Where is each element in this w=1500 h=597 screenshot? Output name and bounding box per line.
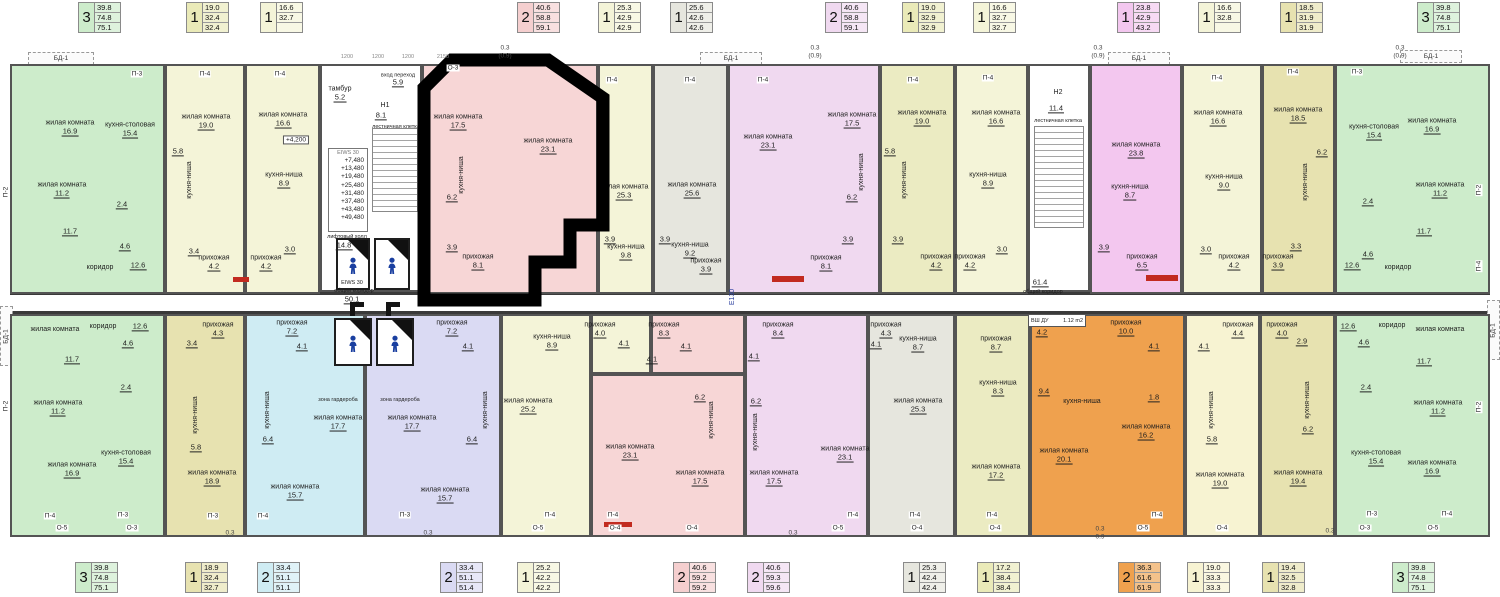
room-area: 11.2	[1432, 189, 1448, 198]
axis-label-text: П-4	[608, 512, 618, 519]
room-area: 3.9	[842, 235, 854, 244]
room-area: 2.9	[1296, 337, 1308, 346]
area-values: 19.032.932.9	[919, 3, 944, 32]
room-area: 4.3	[880, 329, 892, 338]
room-name: лифтовый холл	[327, 234, 367, 240]
room-area: 3.0	[284, 245, 296, 254]
room-label: 5.8	[190, 443, 202, 452]
room-count: 1	[518, 563, 534, 592]
axis-label: П-4	[1476, 260, 1483, 272]
area-value: 25.6	[687, 3, 712, 13]
room-area: 5.9	[392, 78, 404, 87]
area-value: 19.0	[203, 3, 228, 13]
room-label: кухня-ниша	[901, 161, 909, 198]
room-area: 5.8	[190, 443, 202, 452]
room-label: кухня-ниша	[458, 156, 466, 193]
room-label: жилая комната	[1416, 326, 1465, 334]
duct-area: 1.12 m2	[1063, 318, 1083, 324]
area-value: 19.0	[919, 3, 944, 13]
room-label: 2.9	[1296, 337, 1308, 346]
room-count: 3	[79, 3, 95, 32]
apartment-summary-card[interactable]: 117.238.438.4	[977, 562, 1020, 593]
apartment-summary-card[interactable]: 125.642.642.6	[670, 2, 713, 33]
corridor-label: 61.4	[1032, 278, 1049, 287]
area-values: 17.238.438.4	[994, 563, 1019, 592]
room-label: 3.9	[446, 243, 458, 252]
apartment-summary-card[interactable]: 125.342.442.4	[903, 562, 946, 593]
room-label: 4.1	[296, 342, 308, 351]
room-count: 2	[748, 563, 764, 592]
room-area: 11.2	[54, 189, 70, 198]
central-corridor	[10, 292, 1490, 314]
area-value: 74.8	[92, 573, 117, 583]
area-values: 40.658.859.1	[842, 3, 867, 32]
room-area: 12.6	[1344, 261, 1361, 270]
room-label: 3.3	[1290, 242, 1302, 251]
axis-label: П-4	[544, 512, 556, 519]
apartment-summary-card[interactable]: 233.451.151.1	[257, 562, 300, 593]
apartment-summary-card[interactable]: 233.451.151.4	[440, 562, 483, 593]
area-value: 32.4	[202, 573, 227, 583]
area-values: 19.432.532.8	[1279, 563, 1304, 592]
area-value: 32.7	[277, 13, 302, 23]
room-area: 2.4	[1362, 197, 1374, 206]
area-value: 32.9	[919, 23, 944, 32]
duct-label: ВШ ДУ1.12 m2	[1028, 314, 1086, 327]
axis-label-text: П-4	[908, 77, 918, 84]
level-value: +49,480	[332, 214, 364, 222]
room-area: 3.9	[446, 243, 458, 252]
room-area: 4.1	[680, 342, 692, 351]
room-name: кухня-ниша	[708, 401, 716, 438]
axis-label-text: О-4	[990, 525, 1001, 532]
room-name: Н2	[1054, 89, 1063, 97]
room-label: кухня-ниша	[752, 413, 760, 450]
apartment-unit-selected[interactable]	[422, 64, 598, 294]
room-area: 9.8	[620, 251, 632, 260]
area-value: 32.7	[990, 23, 1015, 32]
dimension-label: 0.3	[1395, 45, 1404, 52]
area-value: 33.3	[1204, 583, 1229, 592]
room-area: 6.2	[846, 193, 858, 202]
room-area: 14.8	[336, 241, 353, 250]
room-label: кухня-ниша8.7	[1111, 184, 1148, 201]
axis-label-text: П-3	[118, 512, 128, 519]
area-values: 36.361.661.9	[1135, 563, 1160, 592]
room-label: 4.6	[1362, 250, 1374, 259]
axis-label-text: О-4	[1217, 525, 1228, 532]
room-area: 8.9	[982, 179, 994, 188]
area-value: 74.8	[1434, 13, 1459, 23]
floor-plan-stage: жилая комната16.9кухня-столовая15.4жилая…	[0, 0, 1500, 597]
room-name: коридор	[1385, 264, 1412, 272]
room-area: 4.1	[462, 342, 474, 351]
level-value: +13,480	[332, 165, 364, 173]
room-label: 2.4	[1360, 383, 1372, 392]
room-label: 2.4	[1362, 197, 1374, 206]
axis-label-text: О-5	[833, 525, 844, 532]
room-label: 4.1	[680, 342, 692, 351]
axis-label-text: О-4	[912, 525, 923, 532]
room-area: 16.6	[988, 117, 1005, 126]
apartment-unit[interactable]	[10, 314, 165, 537]
corridor-label: лестничная клетка	[1034, 118, 1082, 124]
area-value: 43.2	[1134, 23, 1159, 32]
room-area: 6.2	[446, 193, 458, 202]
axis-label-text: П-4	[1212, 75, 1222, 82]
axis-label: О-5	[1427, 525, 1440, 532]
area-value: 33.4	[457, 563, 482, 573]
room-area: 4.6	[1362, 250, 1374, 259]
apartment-summary-card[interactable]: 119.033.333.3	[1187, 562, 1230, 593]
dimension-label: (0.9)	[1393, 53, 1406, 60]
axis-label: О-4	[1216, 525, 1229, 532]
axis-label-text: П-3	[400, 512, 410, 519]
room-label: прихожая4.2	[1218, 254, 1249, 271]
room-label: 4.1	[748, 352, 760, 361]
dimension-label: 1200	[341, 54, 353, 60]
dimension-label: 0.3	[225, 530, 234, 537]
area-value: 32.4	[203, 23, 228, 32]
room-area: 6.4	[466, 435, 478, 444]
axis-label: О-5	[56, 525, 69, 532]
apartment-summary-card[interactable]: 339.874.875.1	[1417, 2, 1460, 33]
axis-label: П-3	[1366, 511, 1378, 518]
room-label: кухня-ниша9.0	[1205, 174, 1242, 191]
room-area: 19.0	[914, 117, 931, 126]
area-values: 39.874.875.1	[95, 3, 120, 32]
dimension-value: 0.3	[1395, 45, 1404, 52]
axis-label: О-5	[532, 525, 545, 532]
apartment-summary-card[interactable]: 236.361.661.9	[1118, 562, 1161, 593]
room-label: жилая комната	[31, 326, 80, 334]
room-name: кухня-ниша	[1302, 163, 1310, 200]
room-area: 2.4	[1360, 383, 1372, 392]
area-values: 25.242.242.2	[534, 563, 559, 592]
room-count: 1	[1188, 563, 1204, 592]
room-label: жилая комната25.3	[894, 398, 943, 415]
room-label: жилая комната17.2	[972, 464, 1021, 481]
area-value: 59.6	[764, 583, 789, 592]
area-value: 33.3	[1204, 573, 1229, 583]
level-value: +7,480	[332, 157, 364, 165]
room-label: прихожая8.1	[462, 254, 493, 271]
area-value: 42.9	[615, 13, 640, 23]
room-label: 12.6	[1340, 322, 1357, 331]
room-label: зона гардероба	[318, 397, 358, 403]
room-name: E130	[729, 289, 737, 305]
room-area: 4.1	[646, 355, 658, 364]
apartment-summary-card[interactable]: 240.658.859.1	[517, 2, 560, 33]
apartment-summary-card[interactable]: 339.874.875.1	[75, 562, 118, 593]
room-area: 15.4	[118, 457, 135, 466]
room-area: 10.0	[1118, 327, 1135, 336]
dimension-value: 0.3	[1095, 526, 1104, 533]
axis-label: П-4	[607, 512, 619, 519]
corridor-label: общий коридор	[334, 288, 373, 294]
room-label: 4.2	[1036, 328, 1048, 337]
area-value: 42.4	[920, 583, 945, 592]
room-area: 16.6	[1210, 117, 1227, 126]
room-label: зона гардероба	[380, 397, 420, 403]
axis-label-text: П-4	[1288, 69, 1298, 76]
area-value: 42.9	[615, 23, 640, 32]
apartment-summary-card[interactable]: 339.874.875.1	[78, 2, 121, 33]
room-label: 5.8	[172, 147, 184, 156]
axis-label-text: О-4	[610, 525, 621, 532]
room-label: прихожая7.2	[436, 320, 467, 337]
balcony-label: БД-1	[724, 55, 738, 62]
room-label: жилая комната16.9	[1408, 118, 1457, 135]
room-label: 3.0	[996, 245, 1008, 254]
apartment-unit[interactable]	[165, 314, 245, 537]
dimension-value: 0.9	[1095, 534, 1104, 541]
axis-label: П-4	[1287, 69, 1299, 76]
apartment-summary-card[interactable]: 339.874.875.1	[1392, 562, 1435, 593]
apartment-unit[interactable]	[1185, 314, 1260, 537]
room-area: 4.1	[618, 339, 630, 348]
area-value: 38.4	[994, 573, 1019, 583]
room-area: 7.2	[286, 327, 298, 336]
room-count: 1	[1263, 563, 1279, 592]
axis-label-text: П-4	[910, 512, 920, 519]
room-label: 6.2	[750, 397, 762, 406]
dimension-label: 1200	[372, 54, 384, 60]
room-count: 1	[1118, 3, 1134, 32]
room-label: 3.9	[604, 235, 616, 244]
axis-label-text: П-2	[3, 187, 10, 197]
radiator-mark	[233, 277, 249, 282]
room-label: кухня-ниша	[264, 391, 272, 428]
room-label: 12.6	[1344, 261, 1361, 270]
dimension-label: 2150	[437, 54, 449, 60]
area-value: 38.4	[994, 583, 1019, 592]
room-area: 9.4	[1038, 387, 1050, 396]
room-label: 3.9	[892, 235, 904, 244]
level-value: +43,480	[332, 206, 364, 214]
dimension-value: 0.3	[810, 45, 819, 52]
area-values: 40.658.859.1	[534, 3, 559, 32]
room-area: 8.1	[820, 262, 832, 271]
axis-label: О-3	[1359, 525, 1372, 532]
axis-label: О-5	[1137, 525, 1150, 532]
apartment-summary-card[interactable]: 116.632.8	[1198, 2, 1241, 33]
area-values: 16.632.8	[1215, 3, 1240, 32]
room-label: жилая комната16.6	[259, 112, 308, 129]
room-name: жилая комната	[31, 326, 80, 334]
room-area: 3.9	[1272, 261, 1284, 270]
axis-label: П-4	[1211, 75, 1223, 82]
balcony-label: БД-1	[1490, 323, 1497, 337]
room-label: прихожая4.2	[954, 254, 985, 271]
room-label: жилая комната23.1	[606, 444, 655, 461]
dimension-label: 0.3	[1095, 526, 1104, 533]
room-label: 4.1	[1198, 342, 1210, 351]
elevator-person-icon	[388, 335, 402, 353]
room-label: прихожая4.2	[920, 254, 951, 271]
room-count: 1	[978, 563, 994, 592]
room-name: кухня-ниша	[901, 161, 909, 198]
apartment-summary-card[interactable]: 123.842.943.2	[1117, 2, 1160, 33]
room-area: 18.9	[204, 477, 221, 486]
level-value: +37,480	[332, 198, 364, 206]
axis-label-text: П-4	[258, 513, 268, 520]
apartment-unit[interactable]	[745, 314, 868, 537]
room-name: зона гардероба	[318, 397, 358, 403]
room-label: 6.2	[446, 193, 458, 202]
area-values: 33.451.151.1	[274, 563, 299, 592]
room-label: жилая комната23.1	[524, 138, 573, 155]
room-label: жилая комната25.3	[600, 184, 649, 201]
elevator-shaft	[374, 238, 410, 290]
room-label: коридор	[90, 323, 117, 331]
dimension-label: 0.3	[1093, 45, 1102, 52]
apartment-summary-card[interactable]: 116.632.732.7	[973, 2, 1016, 33]
axis-label-text: П-4	[983, 75, 993, 82]
apartment-summary-card[interactable]: 240.659.359.6	[747, 562, 790, 593]
room-area: 4.3	[212, 329, 224, 338]
axis-label: П-2	[3, 400, 10, 412]
room-label: 4.1	[618, 339, 630, 348]
apartment-summary-card[interactable]: 240.658.859.1	[825, 2, 868, 33]
room-label: 6.2	[846, 193, 858, 202]
room-label: кухня-ниша8.3	[979, 380, 1016, 397]
apartment-summary-card[interactable]: 119.432.532.8	[1262, 562, 1305, 593]
dimension-value: 2150	[437, 54, 449, 60]
room-label: жилая комната16.9	[46, 120, 95, 137]
dimension-label: 0.3	[810, 45, 819, 52]
apartment-summary-card[interactable]: 240.659.259.2	[673, 562, 716, 593]
room-name: +4,200	[283, 135, 309, 144]
room-label: 12.6	[130, 261, 147, 270]
dimension-value: 0.3	[1093, 45, 1102, 52]
area-value: 75.1	[1409, 583, 1434, 592]
axis-label: П-4	[44, 513, 56, 520]
dimension-value: 0.3	[225, 530, 234, 537]
area-value: 59.1	[534, 23, 559, 32]
apartment-unit[interactable]	[1260, 314, 1335, 537]
area-values: 25.642.642.6	[687, 3, 712, 32]
area-values: 39.874.875.1	[92, 563, 117, 592]
room-label: кухня-ниша8.9	[265, 172, 302, 189]
room-label: кухня-ниша	[186, 161, 194, 198]
room-name: кухня-ниша	[1304, 381, 1312, 418]
axis-label-text: П-3	[1352, 69, 1362, 76]
area-value: 32.8	[1279, 583, 1304, 592]
area-values: 19.033.333.3	[1204, 563, 1229, 592]
axis-label: П-4	[907, 77, 919, 84]
room-label: жилая комната15.7	[421, 487, 470, 504]
corridor-label: EIWS 30	[341, 280, 363, 286]
apartment-summary-card[interactable]: 125.342.942.9	[598, 2, 641, 33]
axis-label: П-4	[1151, 512, 1163, 519]
room-label: жилая комната25.2	[504, 398, 553, 415]
room-area: 18.5	[1290, 114, 1307, 123]
room-label: жилая комната19.0	[182, 114, 231, 131]
room-count: 1	[1199, 3, 1215, 32]
room-label: 6.4	[262, 435, 274, 444]
room-area: 16.6	[275, 119, 292, 128]
room-area: 4.6	[1358, 338, 1370, 347]
area-value: 59.3	[764, 573, 789, 583]
room-name: общий коридор	[1023, 289, 1062, 295]
room-label: 3.9	[659, 235, 671, 244]
area-value: 32.5	[1279, 573, 1304, 583]
room-label: кухня-столовая15.4	[1349, 124, 1399, 141]
dimension-value: 0.3	[1325, 528, 1334, 535]
room-count: 2	[441, 563, 457, 592]
axis-label: П-3	[399, 512, 411, 519]
room-area: 4.1	[1198, 342, 1210, 351]
room-area: 3.9	[604, 235, 616, 244]
room-area: 9.0	[1218, 181, 1230, 190]
room-area: 11.7	[1416, 227, 1432, 236]
room-name: EIWS 30	[341, 280, 363, 286]
room-label: кухня-столовая15.4	[101, 450, 151, 467]
room-label: 11.7	[1416, 227, 1432, 236]
room-label: 5.8	[884, 147, 896, 156]
area-value: 19.0	[1204, 563, 1229, 573]
room-label: жилая комната16.6	[972, 110, 1021, 127]
staircase	[1034, 126, 1084, 228]
room-area: 19.0	[1212, 479, 1229, 488]
room-area: 15.4	[1366, 131, 1383, 140]
staircase	[372, 128, 418, 212]
room-label: жилая комната16.2	[1122, 424, 1171, 441]
room-count: 1	[186, 563, 202, 592]
dimension-value: 0.3	[500, 45, 509, 52]
area-values: 33.451.151.4	[457, 563, 482, 592]
area-value: 31.9	[1297, 13, 1322, 23]
room-area: 4.1	[870, 340, 882, 349]
apartment-summary-card[interactable]: 118.932.432.7	[185, 562, 228, 593]
dimension-label: (0.9)	[498, 53, 511, 60]
room-count: 3	[76, 563, 92, 592]
room-area: 16.9	[1424, 125, 1441, 134]
duct-name: ВШ ДУ	[1031, 318, 1049, 324]
axis-label: П-3	[117, 512, 129, 519]
room-area: 23.1	[760, 141, 777, 150]
room-label: 3.9	[1098, 243, 1110, 252]
area-value: 42.2	[534, 573, 559, 583]
room-count: 3	[1418, 3, 1434, 32]
room-area: 17.5	[692, 477, 709, 486]
room-label: жилая комната23.1	[821, 446, 870, 463]
room-area: 6.4	[262, 435, 274, 444]
axis-label: П-4	[257, 513, 269, 520]
room-label: кухня-столовая15.4	[1351, 450, 1401, 467]
apartment-summary-card[interactable]: 119.032.432.4	[186, 2, 229, 33]
apartment-summary-card[interactable]: 125.242.242.2	[517, 562, 560, 593]
axis-label-text: О-3	[1360, 525, 1371, 532]
room-area: 12.6	[132, 322, 149, 331]
room-area: 23.1	[622, 451, 639, 460]
room-label: кухня-ниша9.8	[607, 244, 644, 261]
dimension-label: 0.3	[500, 45, 509, 52]
room-label: 3.9	[842, 235, 854, 244]
room-label: прихожая8.1	[810, 255, 841, 272]
room-area: 4.2	[1228, 261, 1240, 270]
room-area: 6.5	[1136, 261, 1148, 270]
room-area: 4.1	[748, 352, 760, 361]
apartment-summary-card[interactable]: 118.531.931.9	[1280, 2, 1323, 33]
room-area: 20.1	[1056, 455, 1073, 464]
room-area: 5.8	[1206, 435, 1218, 444]
room-name: кухня-ниша	[482, 391, 490, 428]
apartment-summary-card[interactable]: 119.032.932.9	[902, 2, 945, 33]
room-label: жилая комната17.5	[750, 470, 799, 487]
apartment-summary-card[interactable]: 116.632.7	[260, 2, 303, 33]
